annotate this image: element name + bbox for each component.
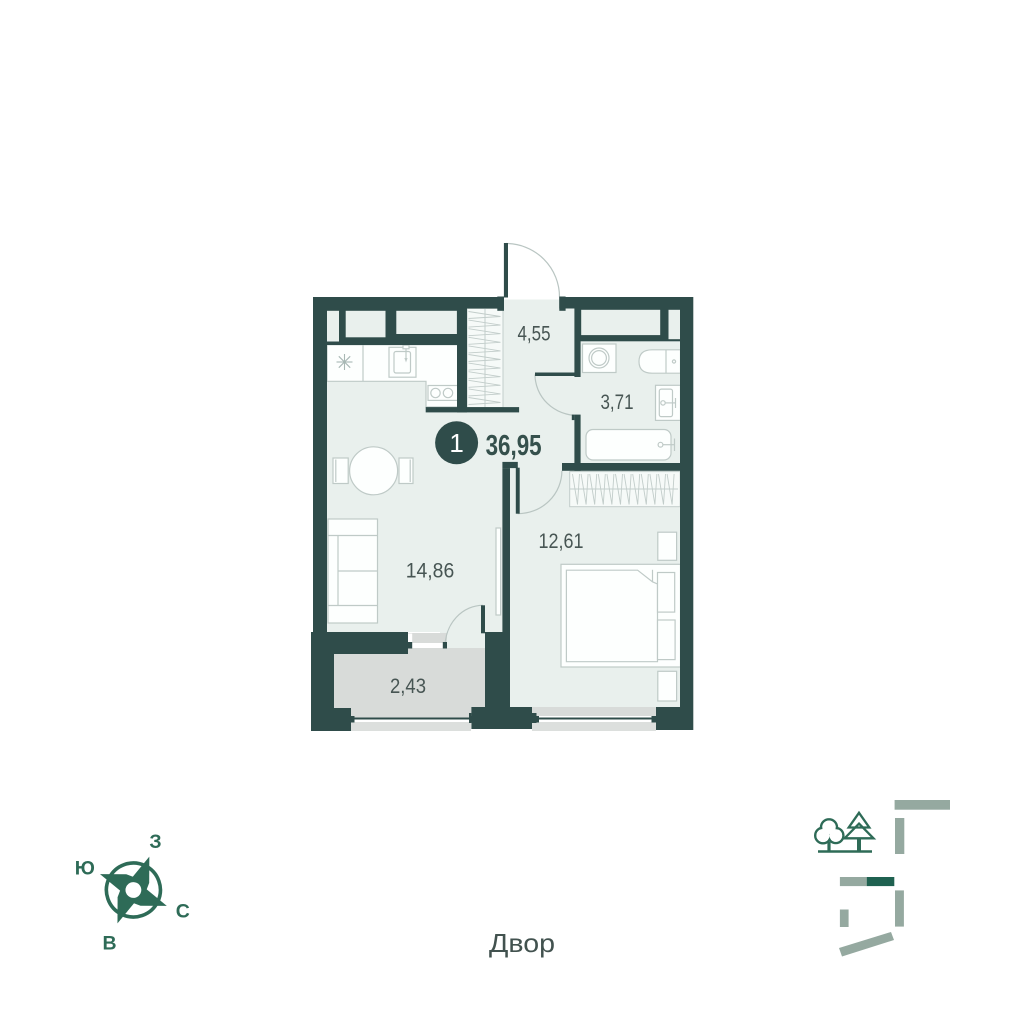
svg-text:3,71: 3,71: [601, 391, 634, 414]
svg-text:4,55: 4,55: [518, 323, 551, 346]
svg-text:1: 1: [449, 428, 463, 458]
svg-text:Ю: Ю: [75, 857, 95, 879]
svg-text:С: С: [176, 900, 190, 922]
svg-text:Двор: Двор: [489, 928, 555, 958]
svg-text:36,95: 36,95: [486, 430, 542, 462]
svg-text:В: В: [103, 933, 117, 955]
svg-text:14,86: 14,86: [406, 560, 455, 583]
svg-text:12,61: 12,61: [539, 530, 584, 553]
svg-text:З: З: [149, 831, 161, 853]
svg-text:2,43: 2,43: [390, 675, 426, 698]
